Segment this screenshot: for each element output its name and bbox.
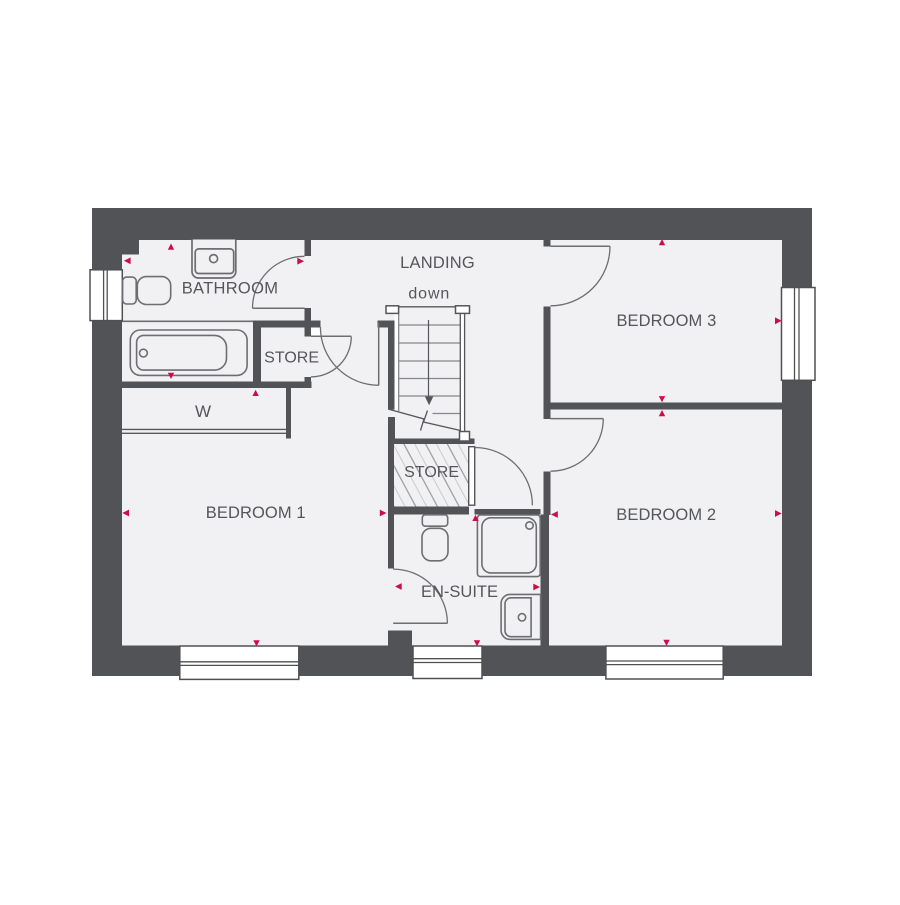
svg-text:STORE: STORE xyxy=(404,464,459,481)
svg-text:BATHROOM: BATHROOM xyxy=(182,280,279,298)
svg-text:down: down xyxy=(408,286,450,303)
svg-text:BEDROOM 3: BEDROOM 3 xyxy=(616,312,716,330)
svg-text:W: W xyxy=(195,402,211,421)
svg-text:STORE: STORE xyxy=(264,349,319,366)
svg-text:EN-SUITE: EN-SUITE xyxy=(421,583,498,601)
svg-text:LANDING: LANDING xyxy=(400,254,475,272)
svg-text:BEDROOM 1: BEDROOM 1 xyxy=(206,504,306,522)
svg-text:BEDROOM 2: BEDROOM 2 xyxy=(616,506,716,524)
